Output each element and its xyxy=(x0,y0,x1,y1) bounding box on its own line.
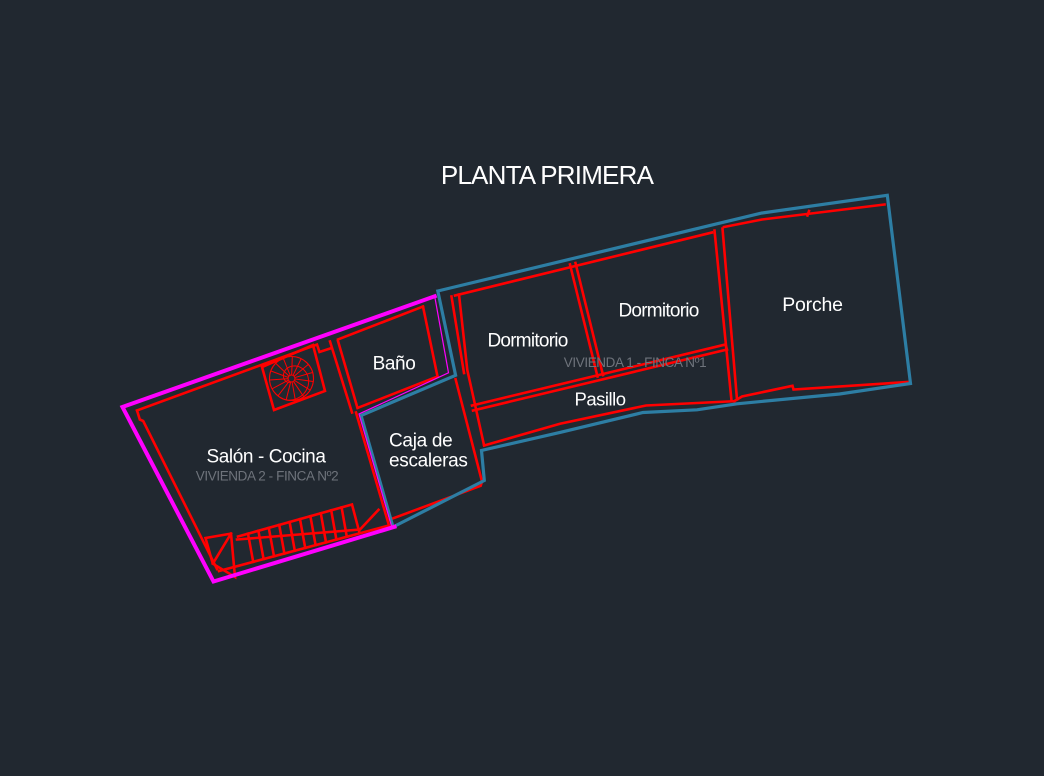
svg-text:Porche: Porche xyxy=(782,294,843,316)
svg-text:VIVIENDA 1 - FINCA Nº1: VIVIENDA 1 - FINCA Nº1 xyxy=(564,355,706,370)
svg-text:Dormitorio: Dormitorio xyxy=(487,331,567,352)
svg-text:VIVIENDA 2 - FINCA Nº2: VIVIENDA 2 - FINCA Nº2 xyxy=(196,469,338,484)
svg-text:Pasillo: Pasillo xyxy=(575,389,626,410)
svg-text:Salón - Cocina: Salón - Cocina xyxy=(206,447,326,468)
svg-text:Baño: Baño xyxy=(373,354,416,375)
svg-text:Caja de: Caja de xyxy=(389,431,452,452)
svg-text:Dormitorio: Dormitorio xyxy=(618,301,698,322)
svg-text:PLANTA PRIMERA: PLANTA PRIMERA xyxy=(441,160,655,190)
svg-text:escaleras: escaleras xyxy=(389,451,468,472)
